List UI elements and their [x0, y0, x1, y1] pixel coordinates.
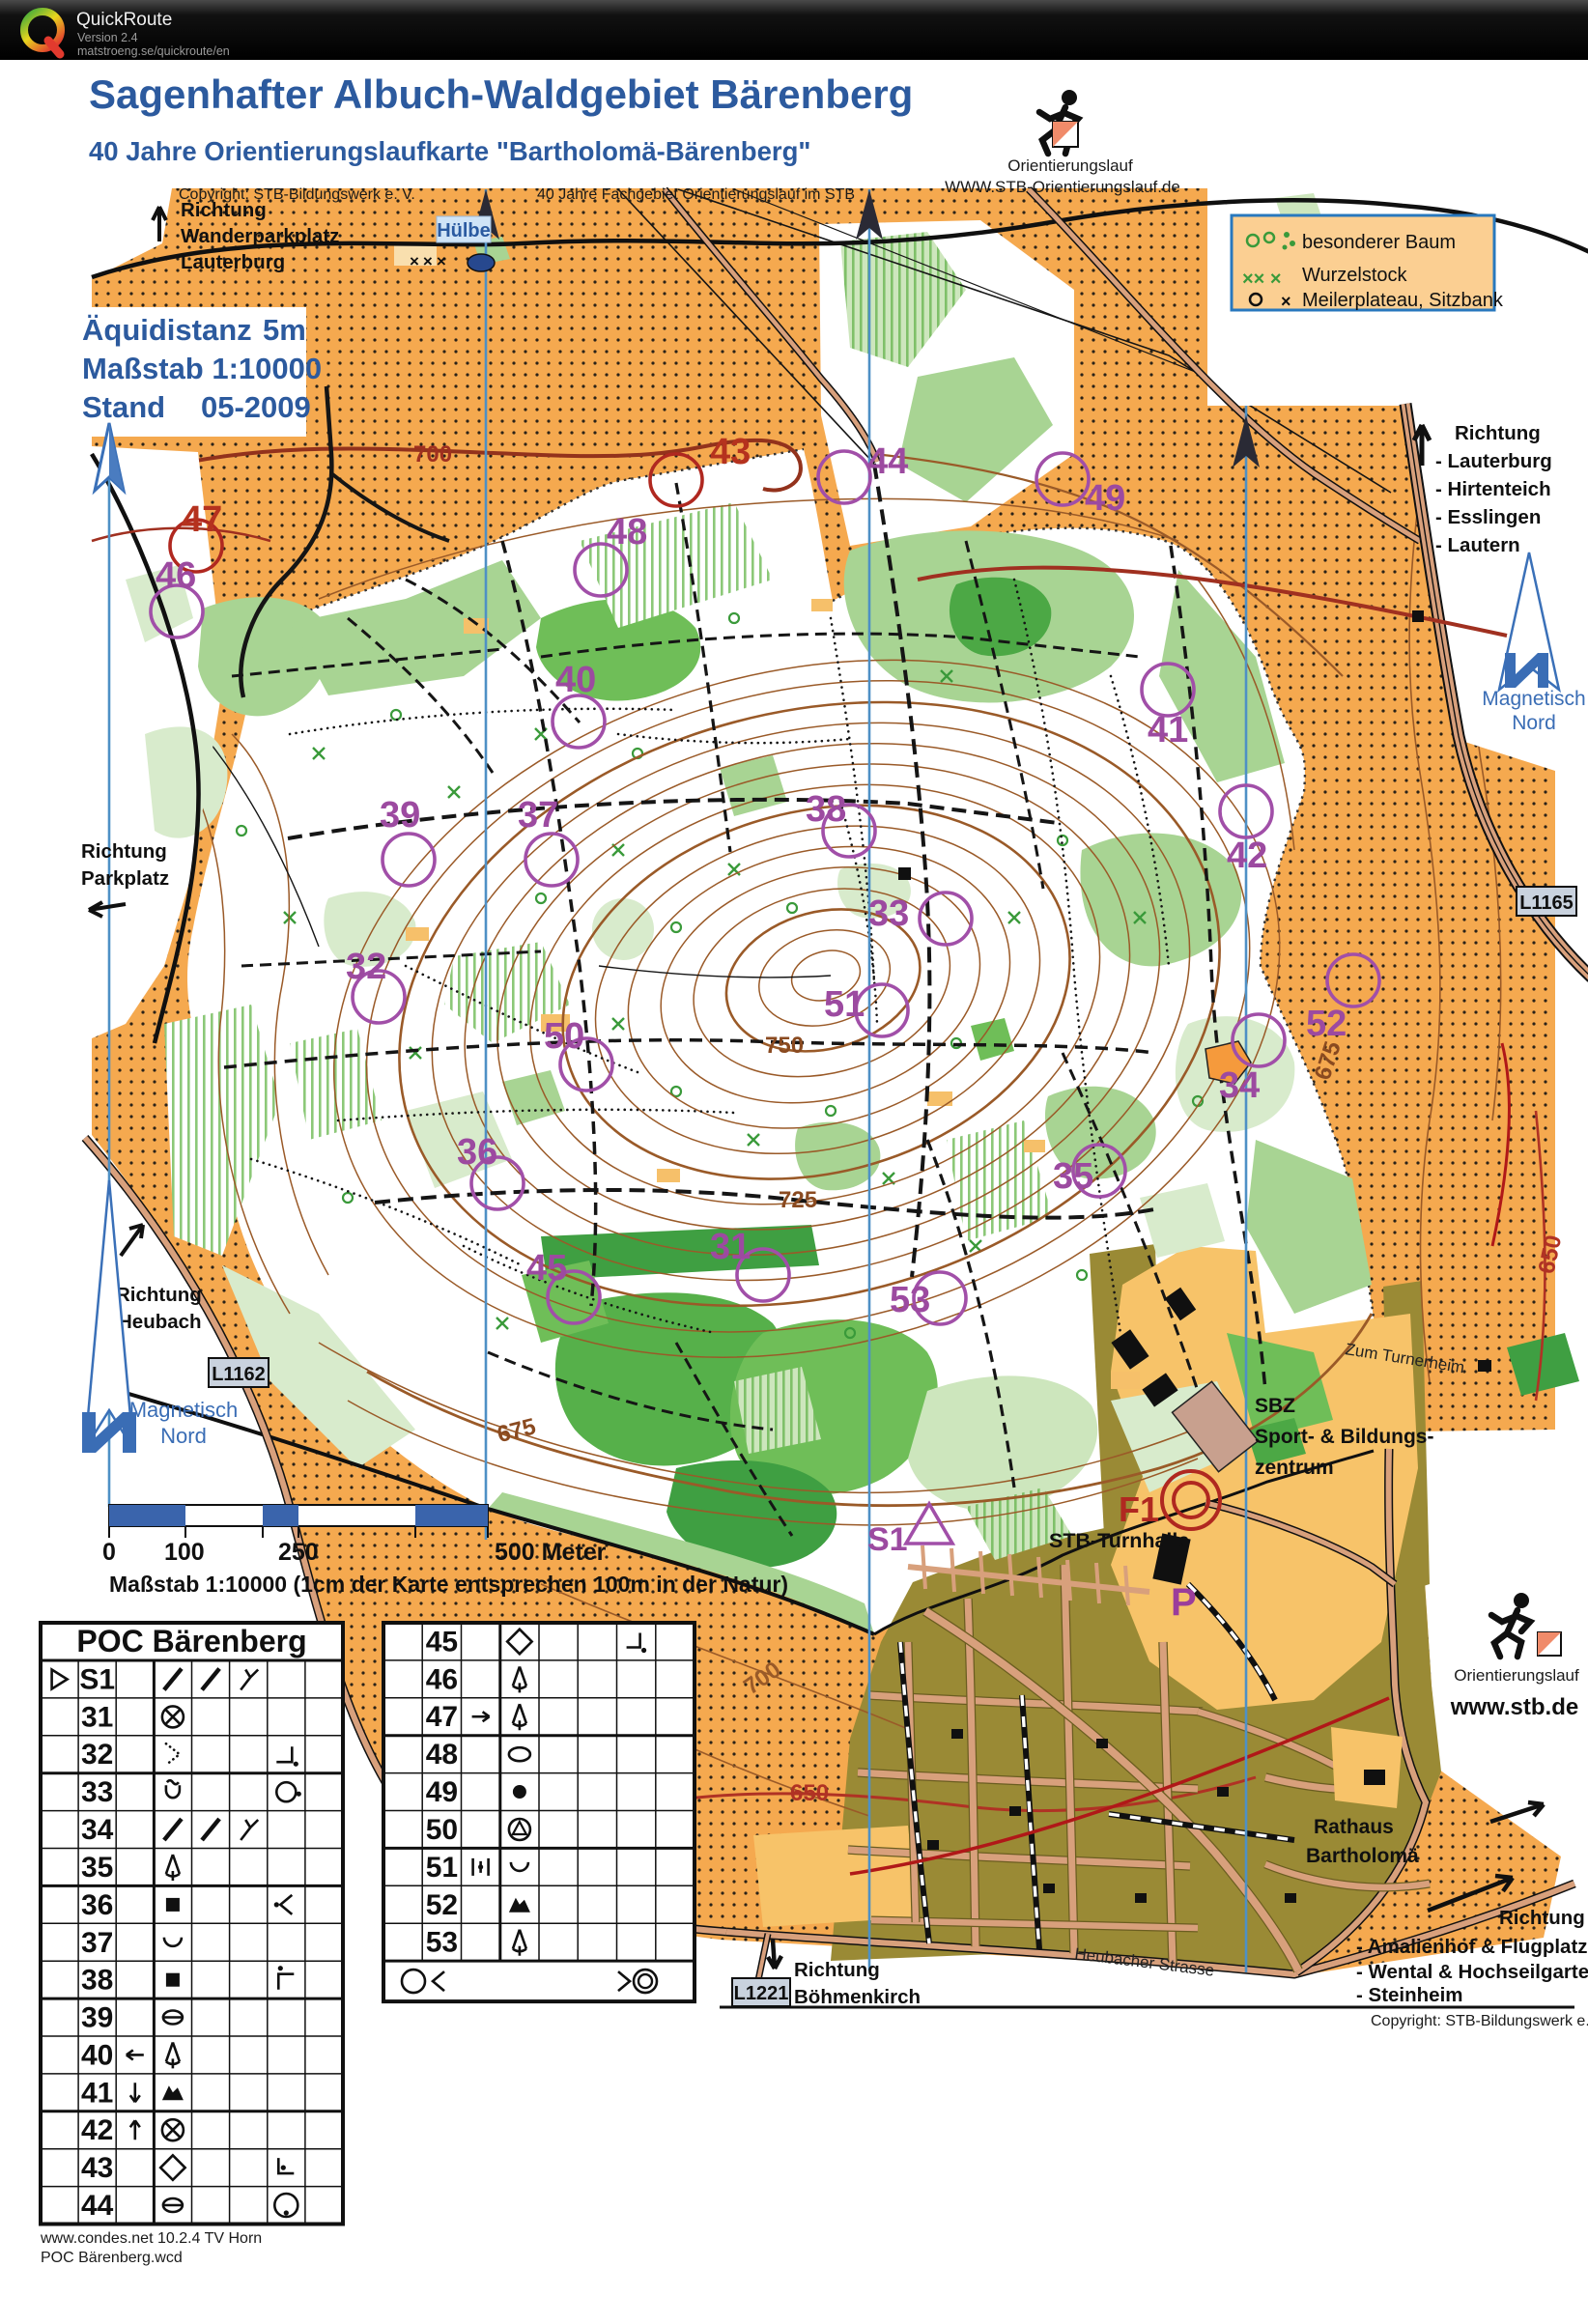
svg-text:L1165: L1165	[1519, 893, 1574, 914]
svg-text:WWW.STB-Orientierungslauf.de: WWW.STB-Orientierungslauf.de	[945, 178, 1180, 196]
svg-text:43: 43	[710, 432, 751, 472]
svg-text:Äquidistanz: Äquidistanz	[82, 313, 252, 347]
svg-text:matstroeng.se/quickroute/en: matstroeng.se/quickroute/en	[77, 44, 230, 58]
svg-text:L1162: L1162	[212, 1364, 266, 1385]
svg-text:52: 52	[426, 1889, 458, 1921]
svg-text:05-2009: 05-2009	[201, 390, 311, 424]
svg-text:40 Jahre Orientierungslaufkart: 40 Jahre Orientierungslaufkarte "Barthol…	[89, 136, 810, 166]
svg-text:STB-Turnhalle: STB-Turnhalle	[1049, 1529, 1189, 1552]
svg-text:34: 34	[81, 1814, 114, 1846]
svg-text:Richtung: Richtung	[81, 840, 167, 863]
svg-text:49: 49	[426, 1776, 458, 1808]
svg-text:41: 41	[81, 2077, 113, 2109]
svg-text:37: 37	[81, 1927, 113, 1959]
svg-text:48: 48	[426, 1739, 458, 1771]
svg-text:P: P	[1171, 1581, 1197, 1624]
svg-text:725: 725	[779, 1187, 817, 1213]
svg-text:36: 36	[457, 1132, 497, 1173]
svg-text:S1: S1	[79, 1664, 115, 1696]
svg-text:33: 33	[81, 1776, 113, 1808]
svg-text:50: 50	[426, 1814, 458, 1846]
svg-text:500 Meter: 500 Meter	[495, 1539, 607, 1566]
svg-text:Rathaus: Rathaus	[1314, 1816, 1394, 1838]
svg-text:- Lauterburg: - Lauterburg	[1435, 450, 1552, 472]
svg-text:Wanderparkplatz: Wanderparkplatz	[181, 225, 339, 247]
svg-text:Richtung: Richtung	[181, 199, 267, 221]
svg-text:Maßstab 1:10000 (1cm der Karte: Maßstab 1:10000 (1cm der Karte entsprech…	[109, 1572, 788, 1597]
svg-text:52: 52	[1306, 1004, 1347, 1044]
svg-text:- Esslingen: - Esslingen	[1435, 506, 1541, 528]
svg-text:35: 35	[1053, 1156, 1093, 1197]
svg-text:37: 37	[518, 795, 558, 836]
svg-text:Heubach: Heubach	[118, 1311, 202, 1333]
svg-text:Stand: Stand	[82, 390, 165, 424]
svg-text:100: 100	[164, 1539, 205, 1566]
svg-text:Hülbe: Hülbe	[437, 220, 491, 241]
svg-text:38: 38	[806, 789, 846, 830]
svg-text:750: 750	[765, 1033, 804, 1059]
svg-text:0: 0	[102, 1539, 116, 1566]
svg-text:Magnetisch: Magnetisch	[129, 1398, 239, 1422]
svg-text:Wurzelstock: Wurzelstock	[1302, 265, 1408, 286]
svg-text:35: 35	[81, 1852, 113, 1884]
svg-text:L1221: L1221	[734, 1983, 789, 2004]
svg-text:F1: F1	[1119, 1489, 1159, 1529]
svg-text:Lauterburg: Lauterburg	[181, 251, 285, 273]
svg-text:POC Bärenberg.wcd: POC Bärenberg.wcd	[41, 2250, 183, 2266]
svg-text:36: 36	[81, 1889, 113, 1921]
svg-text:QuickRoute: QuickRoute	[76, 10, 172, 30]
svg-text:40: 40	[555, 660, 596, 700]
svg-text:38: 38	[81, 1965, 113, 1997]
svg-text:48: 48	[607, 512, 647, 553]
svg-text:45: 45	[526, 1248, 567, 1289]
svg-text:- Amalienhof & Flugplatz: - Amalienhof & Flugplatz	[1356, 1936, 1588, 1958]
svg-text:Richtung: Richtung	[1499, 1907, 1585, 1929]
svg-text:51: 51	[426, 1852, 458, 1884]
svg-text:Richtung: Richtung	[116, 1284, 202, 1306]
svg-text:Sport- & Bildungs-: Sport- & Bildungs-	[1255, 1426, 1433, 1448]
svg-text:Richtung: Richtung	[1455, 422, 1541, 444]
svg-text:45: 45	[426, 1627, 458, 1658]
svg-text:39: 39	[81, 2002, 113, 2034]
svg-text:- Wental & Hochseilgarten: - Wental & Hochseilgarten	[1356, 1961, 1588, 1983]
svg-text:53: 53	[426, 1927, 458, 1959]
svg-text:www.stb.de: www.stb.de	[1450, 1694, 1578, 1720]
svg-text:53: 53	[890, 1280, 930, 1320]
svg-text:Nord: Nord	[160, 1424, 207, 1448]
svg-text:46: 46	[426, 1663, 458, 1695]
svg-text:42: 42	[81, 2114, 113, 2146]
svg-text:www.condes.net 10.2.4 TV Horn: www.condes.net 10.2.4 TV Horn	[40, 2230, 262, 2247]
svg-text:zentrum: zentrum	[1255, 1457, 1334, 1479]
svg-text:32: 32	[346, 947, 386, 987]
svg-text:Meilerplateau, Sitzbank: Meilerplateau, Sitzbank	[1302, 290, 1504, 311]
svg-text:40: 40	[81, 2039, 113, 2071]
svg-text:Bartholomä: Bartholomä	[1306, 1845, 1419, 1867]
svg-text:41: 41	[1148, 710, 1188, 751]
svg-text:Maßstab 1:10000: Maßstab 1:10000	[82, 352, 322, 385]
svg-text:Version 2.4: Version 2.4	[77, 31, 138, 44]
svg-text:Böhmenkirch: Böhmenkirch	[794, 1986, 921, 2008]
svg-text:47: 47	[182, 499, 222, 540]
svg-text:40 Jahre Fachgebiet Orientieru: 40 Jahre Fachgebiet Orientierungslauf im…	[537, 186, 855, 203]
svg-text:Sagenhafter Albuch-Waldgebiet: Sagenhafter Albuch-Waldgebiet Bärenberg	[89, 71, 913, 117]
svg-text:5m: 5m	[263, 313, 306, 347]
svg-text:43: 43	[81, 2152, 113, 2184]
svg-text:×× ×: ×× ×	[1242, 269, 1282, 290]
svg-text:Nord: Nord	[1512, 712, 1556, 734]
svg-text:47: 47	[426, 1701, 458, 1733]
svg-text:34: 34	[1219, 1065, 1260, 1106]
svg-text:besonderer Baum: besonderer Baum	[1302, 232, 1456, 253]
svg-text:- Lautern: - Lautern	[1435, 534, 1520, 556]
svg-text:Parkplatz: Parkplatz	[81, 867, 169, 890]
svg-text:250: 250	[278, 1539, 319, 1566]
svg-text:Magnetisch: Magnetisch	[1482, 688, 1585, 710]
svg-text:Copyright: STB-Bildungswerk e.: Copyright: STB-Bildungswerk e. V.	[1371, 2013, 1588, 2029]
svg-text:51: 51	[824, 984, 865, 1025]
svg-text:44: 44	[81, 2190, 114, 2222]
svg-text:31: 31	[81, 1701, 113, 1733]
svg-text:46: 46	[156, 555, 196, 596]
svg-text:- Steinheim: - Steinheim	[1356, 1984, 1463, 2006]
svg-text:650: 650	[790, 1780, 829, 1806]
svg-text:- Hirtenteich: - Hirtenteich	[1435, 478, 1551, 500]
svg-text:Orientierungslauf: Orientierungslauf	[1007, 156, 1133, 175]
svg-text:700: 700	[413, 441, 452, 468]
svg-text:POC Bärenberg: POC Bärenberg	[76, 1624, 306, 1658]
svg-text:S1: S1	[867, 1521, 908, 1558]
svg-text:44: 44	[867, 441, 908, 482]
svg-text:32: 32	[81, 1739, 113, 1771]
svg-text:50: 50	[544, 1016, 584, 1057]
svg-text:42: 42	[1227, 836, 1267, 876]
svg-text:49: 49	[1085, 478, 1125, 519]
svg-text:31: 31	[710, 1227, 751, 1267]
svg-text:SBZ: SBZ	[1255, 1395, 1295, 1417]
svg-text:×××: ×××	[410, 252, 450, 270]
svg-text:Richtung: Richtung	[794, 1959, 880, 1981]
svg-text:×: ×	[1281, 292, 1291, 311]
svg-text:Orientierungslauf: Orientierungslauf	[1454, 1666, 1579, 1685]
svg-text:39: 39	[380, 795, 420, 836]
svg-text:33: 33	[868, 893, 909, 934]
